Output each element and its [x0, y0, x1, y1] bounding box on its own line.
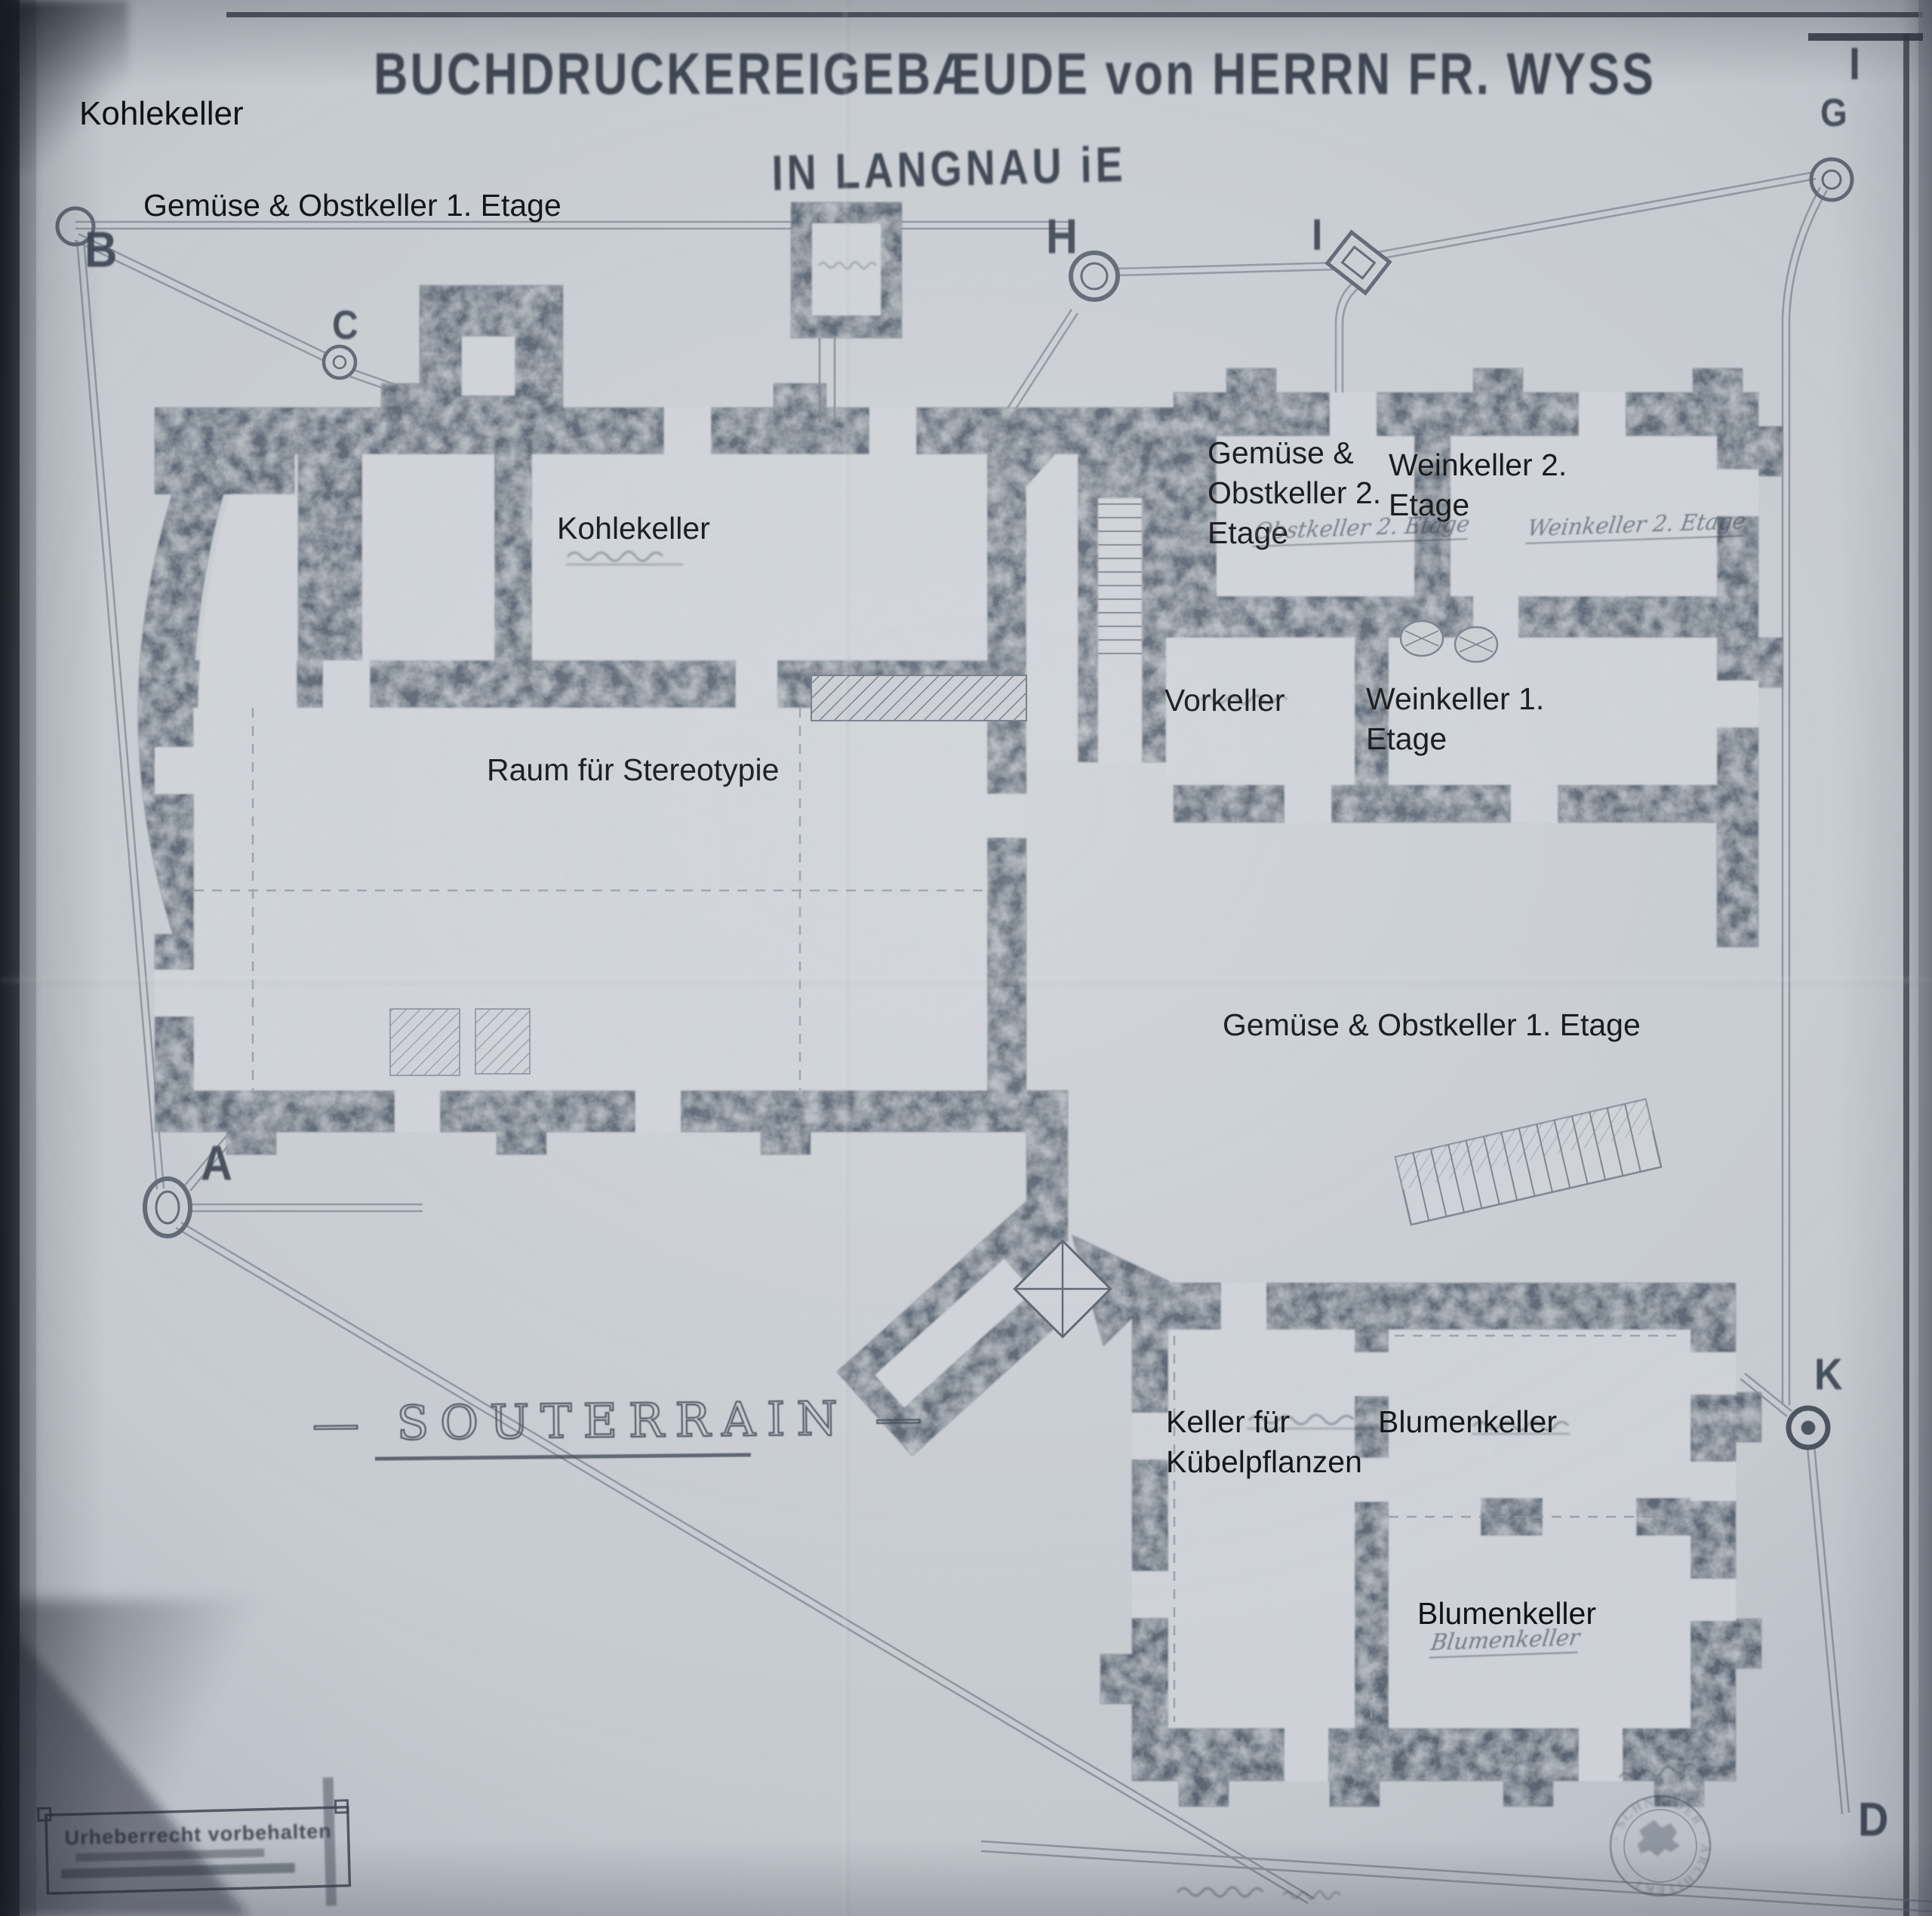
plan-letter-c: C	[332, 303, 358, 349]
plan-title: BUCHDRUCKEREIGEBÆUDE von HERRN FR. WYSS	[374, 41, 1656, 108]
plan-letter-h: H	[1046, 208, 1078, 265]
label-gemuese-obstkeller-1-mid: Gemüse & Obstkeller 1. Etage	[1223, 1005, 1641, 1045]
label-gemuese-obstkeller-1-top: Gemüse & Obstkeller 1. Etage	[143, 186, 561, 226]
floor-plan-drawing: Urheberrecht vorbehalten · SCHNEIDER · A…	[0, 0, 1932, 1916]
label-keller-fuer-kuebelpflanzen: Keller für Kübelpflanzen	[1166, 1402, 1362, 1482]
scanned-floor-plan-page: Urheberrecht vorbehalten · SCHNEIDER · A…	[0, 0, 1932, 1916]
label-weinkeller-1: Weinkeller 1. Etage	[1366, 679, 1544, 759]
plan-letter-b: B	[85, 220, 117, 278]
label-vorkeller: Vorkeller	[1164, 681, 1285, 721]
floor-label-souterrain: — SOUTERRAIN —	[312, 1390, 934, 1452]
handwriting-blumenkeller: Blumenkeller	[1429, 1624, 1581, 1658]
plan-letter-d: D	[1858, 1791, 1888, 1847]
plan-letter-k: K	[1814, 1349, 1843, 1400]
plan-subtitle: IN LANGNAU iE	[771, 136, 1127, 202]
label-kohlekeller-room: Kohlekeller	[557, 509, 710, 549]
plan-letter-g: G	[1820, 90, 1847, 135]
plan-letter-i-corner: I	[1849, 38, 1860, 90]
label-kohlekeller-corner: Kohlekeller	[79, 94, 244, 134]
plan-letter-i-mid: I	[1312, 210, 1322, 260]
label-blumenkeller-top: Blumenkeller	[1378, 1402, 1557, 1442]
plan-letter-a: A	[201, 1135, 232, 1192]
label-raum-fuer-stereotypie: Raum für Stereotypie	[487, 750, 779, 790]
